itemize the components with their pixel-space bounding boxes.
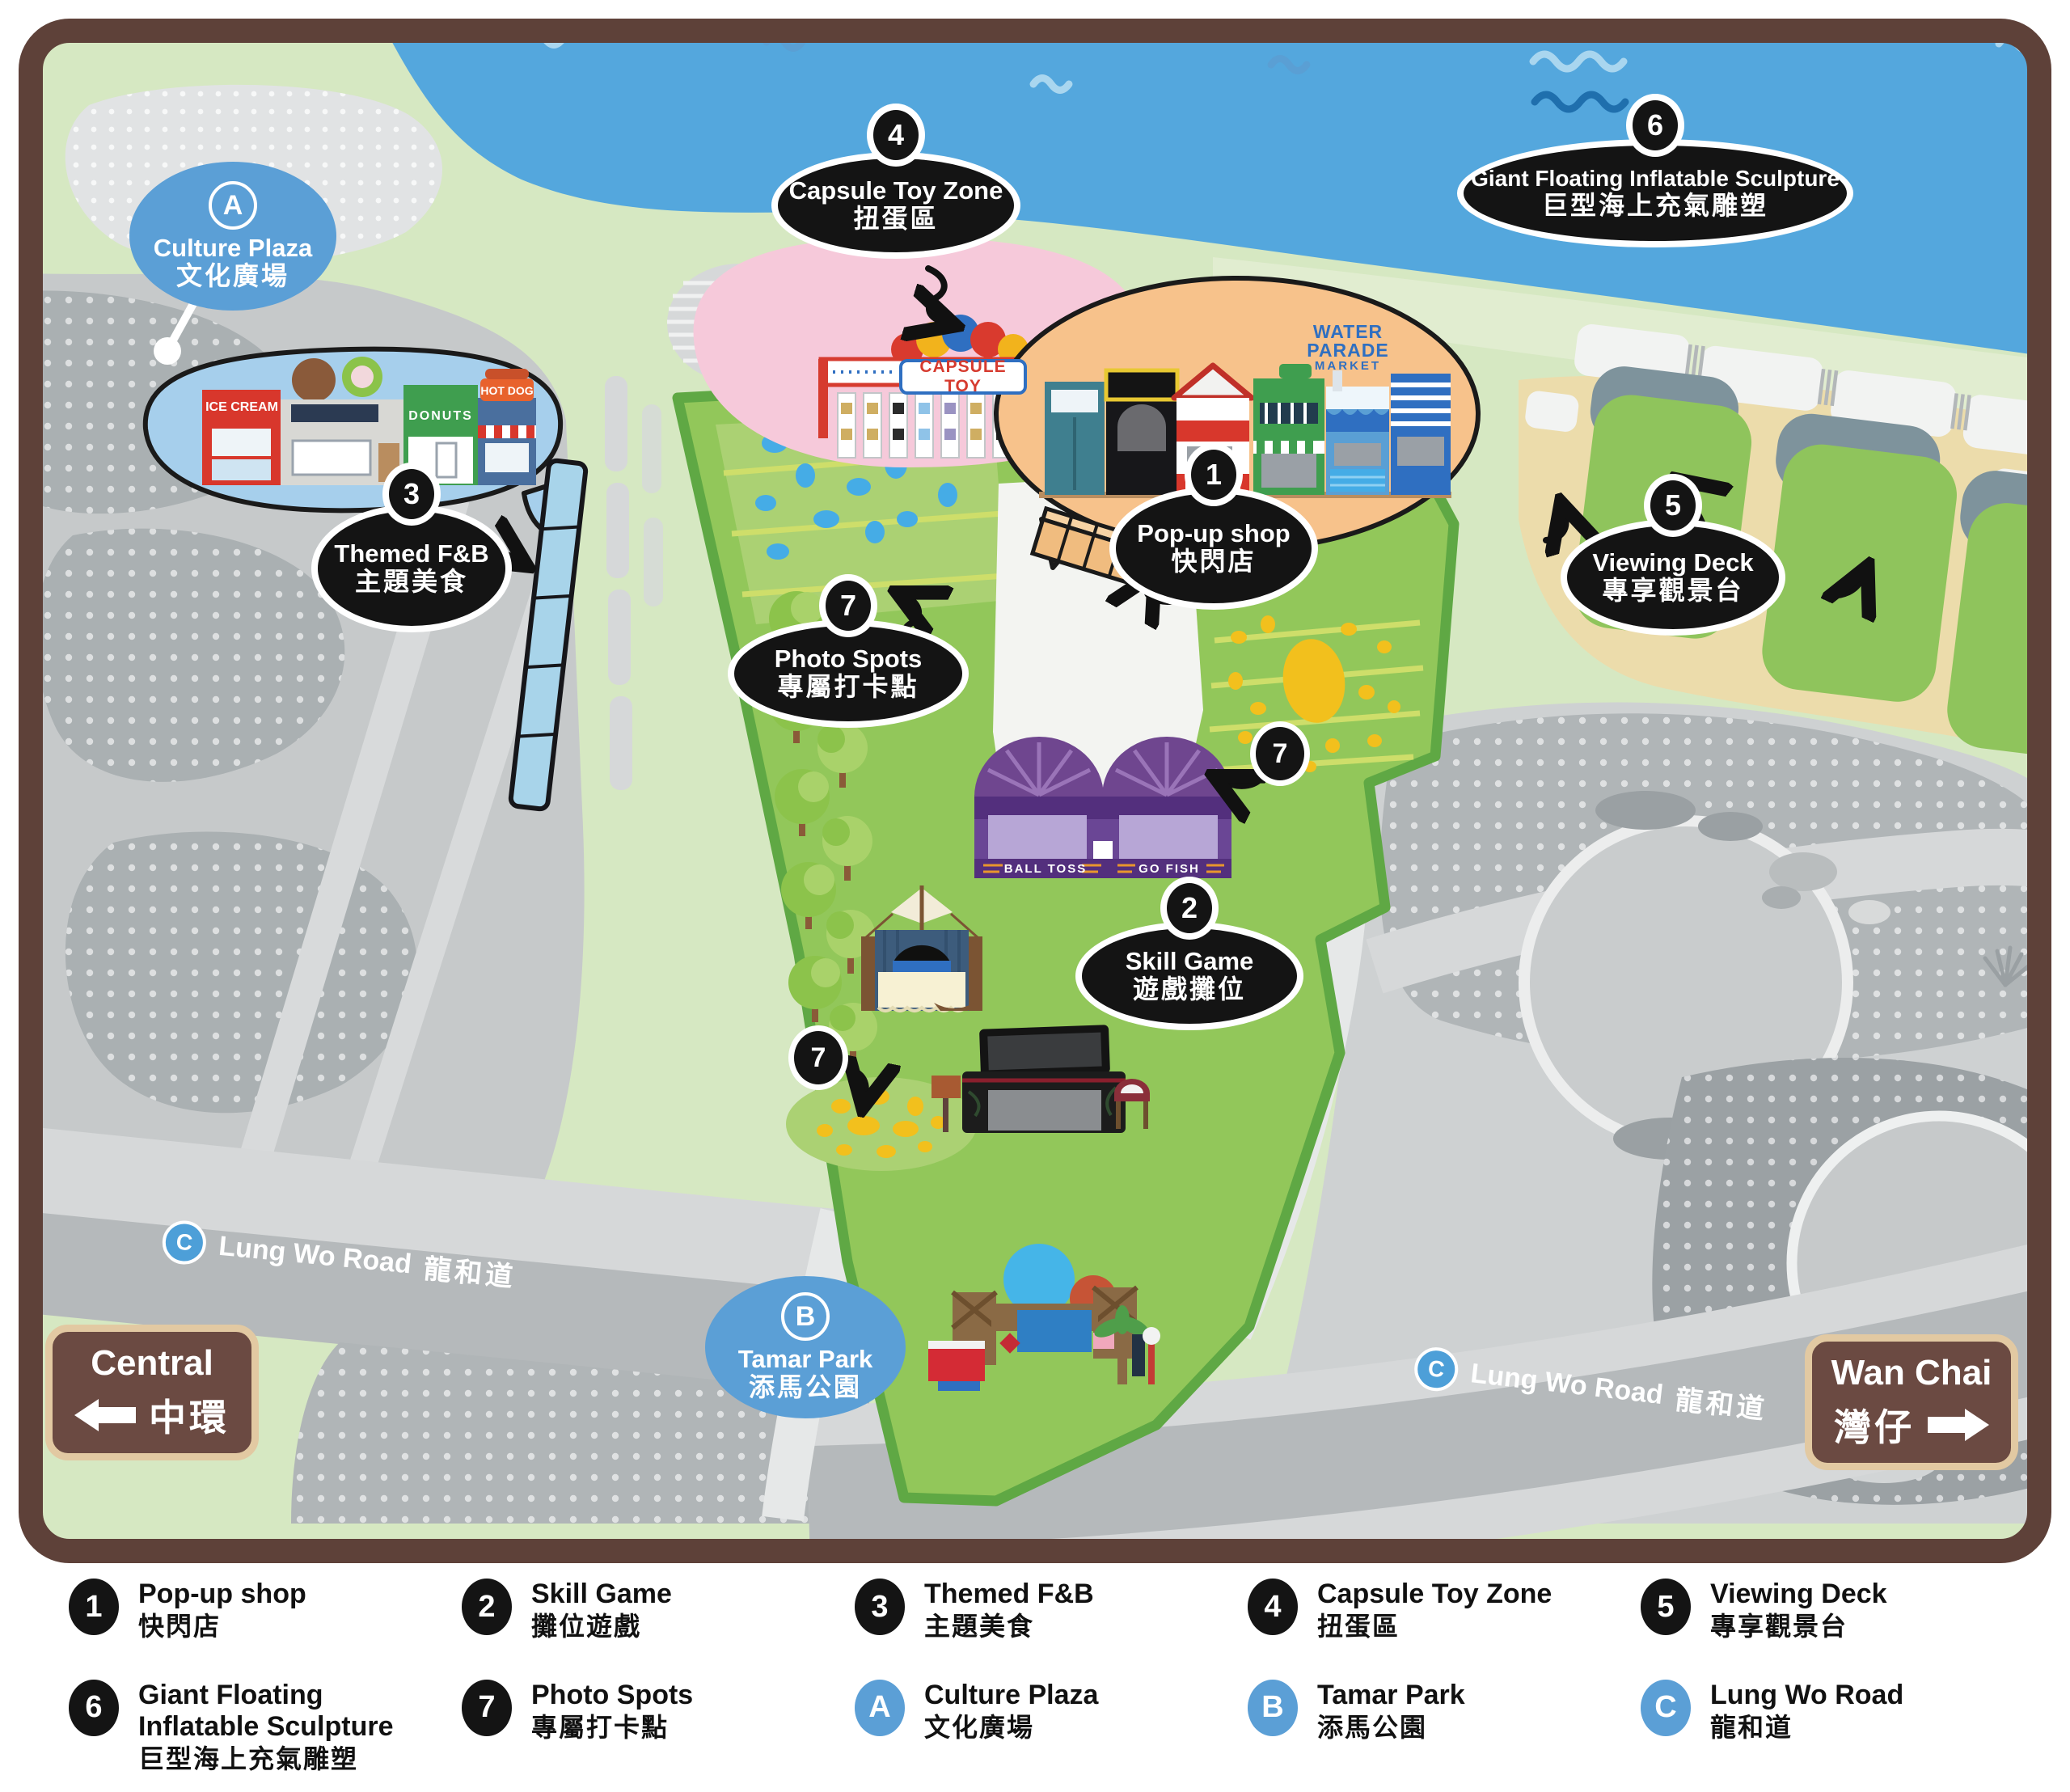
marker-5: 5 bbox=[1644, 474, 1702, 537]
marker-6: 6 bbox=[1626, 94, 1684, 157]
marker-1: 1 bbox=[1185, 443, 1243, 506]
marker-4: 4 bbox=[867, 104, 925, 167]
label-themed-fnb: 3 Themed F&B 主題美食 bbox=[318, 511, 505, 626]
market-sign: WATER PARADE MARKET bbox=[1271, 325, 1425, 369]
legend: 1 Pop-up shop快閃店 2 Skill Game攤位遊戲 3 Them… bbox=[69, 1579, 2034, 1776]
marker-a: A bbox=[209, 181, 257, 230]
label-photo-spots: 7 Photo Spots 專屬打卡點 bbox=[734, 626, 962, 721]
sign-central: Central 中環 bbox=[45, 1325, 259, 1460]
shop-sign-donuts: DONUTS bbox=[404, 404, 477, 429]
legend-marker-6: 6 bbox=[69, 1680, 119, 1736]
game-sign-go-fish: GO FISH bbox=[1127, 859, 1211, 878]
label-culture-plaza: A Culture Plaza 文化廣場 bbox=[129, 162, 336, 311]
legend-item-viewing-deck: 5 Viewing Deck專享觀景台 bbox=[1641, 1579, 2034, 1644]
marker-c: C bbox=[160, 1219, 208, 1266]
legend-marker-1: 1 bbox=[69, 1579, 119, 1635]
legend-marker-b: B bbox=[1248, 1680, 1298, 1736]
legend-marker-5: 5 bbox=[1641, 1579, 1691, 1635]
legend-item-capsule-toy-zone: 4 Capsule Toy Zone扭蛋區 bbox=[1248, 1579, 1641, 1644]
legend-item-popup-shop: 1 Pop-up shop快閃店 bbox=[69, 1579, 462, 1644]
label-inflatable-sculpture: 6 Giant Floating Inflatable Sculpture 巨型… bbox=[1464, 146, 1847, 241]
label-capsule-toy-zone: 4 Capsule Toy Zone 扭蛋區 bbox=[778, 158, 1014, 252]
shop-sign-hot-dog: HOT DOG bbox=[480, 380, 534, 401]
marker-c: C bbox=[1412, 1345, 1460, 1393]
legend-marker-2: 2 bbox=[462, 1579, 512, 1635]
legend-marker-3: 3 bbox=[855, 1579, 905, 1635]
label-popup-shop: 1 Pop-up shop 快閃店 bbox=[1116, 493, 1312, 603]
right-arrow-icon bbox=[1928, 1409, 1989, 1441]
capsule-machine-sign: CAPSULE TOY bbox=[899, 359, 1027, 395]
legend-item-culture-plaza: A Culture Plaza文化廣場 bbox=[855, 1680, 1248, 1777]
shop-sign-ice-cream: ICE CREAM bbox=[204, 395, 280, 421]
label-viewing-deck: 5 Viewing Deck 專享觀景台 bbox=[1567, 526, 1779, 629]
legend-item-themed-fnb: 3 Themed F&B主題美食 bbox=[855, 1579, 1248, 1644]
legend-marker-c: C bbox=[1641, 1680, 1691, 1736]
game-sign-ball-toss: BALL TOSS bbox=[1001, 859, 1090, 878]
legend-marker-4: 4 bbox=[1248, 1579, 1298, 1635]
legend-marker-7: 7 bbox=[462, 1680, 512, 1736]
legend-marker-a: A bbox=[855, 1680, 905, 1736]
marker-7-duck-garden: 7 bbox=[1250, 721, 1310, 786]
sign-wan-chai: Wan Chai 灣仔 bbox=[1805, 1334, 2018, 1470]
label-tamar-park: B Tamar Park 添馬公園 bbox=[705, 1276, 906, 1418]
left-arrow-icon bbox=[74, 1399, 136, 1431]
legend-item-skill-game: 2 Skill Game攤位遊戲 bbox=[462, 1579, 855, 1644]
marker-3: 3 bbox=[382, 463, 441, 526]
marker-7: 7 bbox=[819, 574, 877, 637]
event-map-page: A Culture Plaza 文化廣場 4 Capsule Toy Zone … bbox=[0, 0, 2070, 1792]
label-skill-game: 2 Skill Game 遊戲攤位 bbox=[1082, 928, 1297, 1024]
marker-7-duck-pond: 7 bbox=[788, 1025, 848, 1090]
legend-item-tamar-park: B Tamar Park添馬公園 bbox=[1248, 1680, 1641, 1777]
marker-b: B bbox=[781, 1292, 830, 1341]
legend-item-inflatable-sculpture: 6 Giant Floating Inflatable Sculpture巨型海… bbox=[69, 1680, 462, 1777]
marker-2: 2 bbox=[1160, 877, 1219, 940]
legend-item-lung-wo-road: C Lung Wo Road龍和道 bbox=[1641, 1680, 2034, 1777]
legend-item-photo-spots: 7 Photo Spots專屬打卡點 bbox=[462, 1680, 855, 1777]
